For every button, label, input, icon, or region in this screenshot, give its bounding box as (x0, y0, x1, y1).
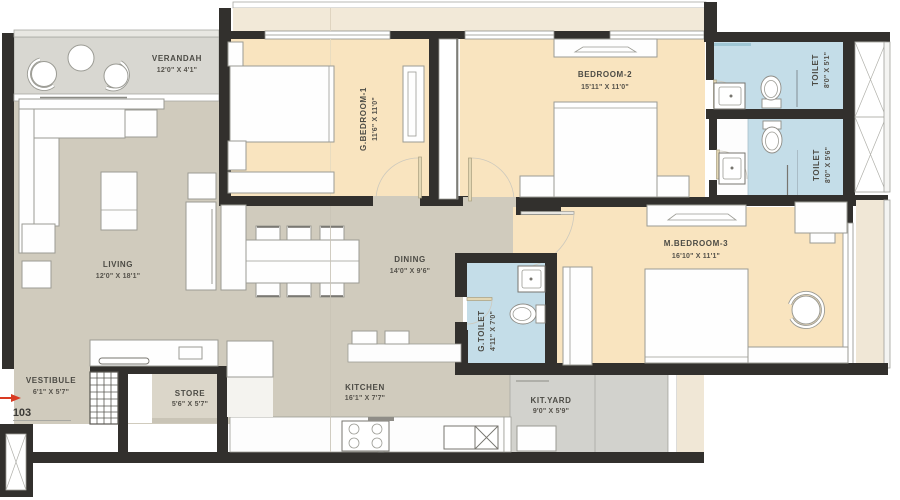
svg-text:9'0" X 5'9": 9'0" X 5'9" (533, 408, 569, 415)
svg-text:8'0" X 5'6": 8'0" X 5'6" (825, 147, 832, 183)
svg-text:G.BEDROOM-1: G.BEDROOM-1 (359, 87, 368, 151)
svg-text:16'1" X 7'7": 16'1" X 7'7" (345, 395, 385, 402)
svg-text:5'6" X 5'7": 5'6" X 5'7" (172, 401, 208, 408)
svg-text:6'1" X 5'7": 6'1" X 5'7" (33, 389, 69, 396)
svg-text:STORE: STORE (175, 389, 205, 398)
svg-text:12'0" X 18'1": 12'0" X 18'1" (96, 273, 140, 280)
svg-text:11'6" X 11'0": 11'6" X 11'0" (372, 97, 379, 141)
svg-text:KIT.YARD: KIT.YARD (531, 396, 572, 405)
svg-text:103: 103 (13, 407, 31, 419)
svg-text:4'11" X 7'0": 4'11" X 7'0" (490, 311, 497, 351)
svg-text:12'0" X 4'1": 12'0" X 4'1" (157, 67, 197, 74)
svg-text:G.TOILET: G.TOILET (477, 310, 486, 352)
svg-text:8'0" X 5'1": 8'0" X 5'1" (824, 52, 831, 88)
svg-text:16'10" X 11'1": 16'10" X 11'1" (672, 253, 720, 260)
svg-text:BEDROOM-2: BEDROOM-2 (578, 70, 632, 79)
svg-text:LIVING: LIVING (103, 260, 133, 269)
svg-text:14'0" X 9'6": 14'0" X 9'6" (390, 268, 430, 275)
svg-text:15'11" X 11'0": 15'11" X 11'0" (581, 84, 629, 91)
svg-text:DINING: DINING (394, 255, 426, 264)
svg-text:VERANDAH: VERANDAH (152, 54, 202, 63)
svg-text:TOILET: TOILET (811, 54, 820, 86)
svg-text:TOILET: TOILET (812, 149, 821, 181)
svg-text:M.BEDROOM-3: M.BEDROOM-3 (664, 239, 728, 248)
svg-text:KITCHEN: KITCHEN (345, 383, 385, 392)
svg-text:VESTIBULE: VESTIBULE (26, 376, 76, 385)
